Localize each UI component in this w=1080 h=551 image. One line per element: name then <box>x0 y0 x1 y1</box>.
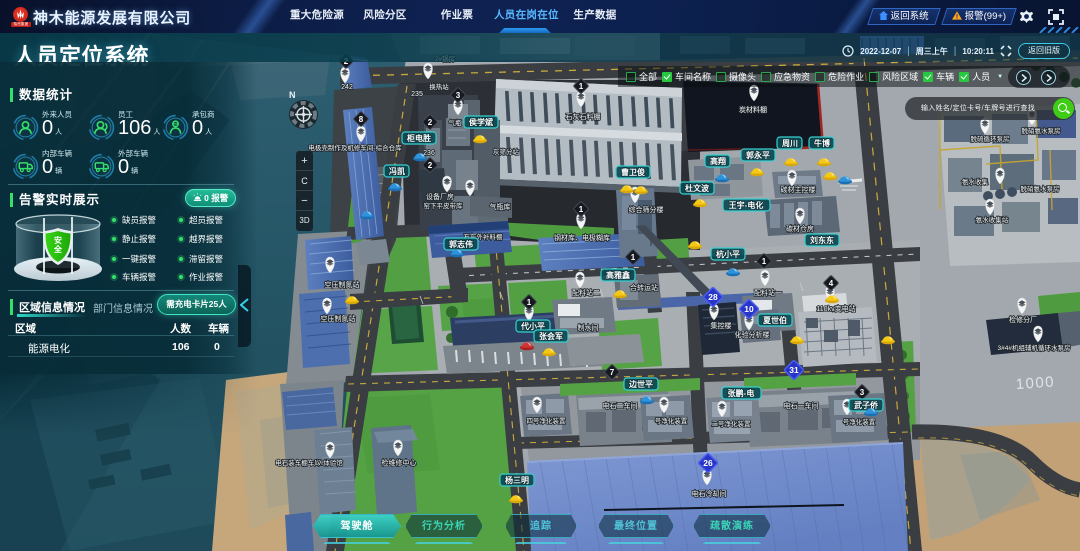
svg-text:空压制氮站: 空压制氮站 <box>321 314 356 323</box>
svg-text:二号净化装置: 二号净化装置 <box>712 419 752 428</box>
svg-text:1: 1 <box>579 82 584 91</box>
svg-text:郭永平: 郭永平 <box>746 150 770 160</box>
svg-text:郭志伟: 郭志伟 <box>449 239 473 249</box>
svg-text:夏世伯: 夏世伯 <box>762 315 787 325</box>
svg-text:四号净化装置: 四号净化装置 <box>527 416 567 425</box>
svg-text:空压制氮站: 空压制氮站 <box>325 280 360 289</box>
svg-text:电石冷却间: 电石冷却间 <box>692 489 727 498</box>
svg-text:化验分析楼: 化验分析楼 <box>735 330 770 339</box>
svg-text:3#4#机组辅机循环水泵房: 3#4#机组辅机循环水泵房 <box>998 343 1071 352</box>
svg-text:氨水收集站: 氨水收集站 <box>976 215 1009 224</box>
svg-text:8: 8 <box>359 115 364 124</box>
svg-text:杜文波: 杜文波 <box>685 183 710 193</box>
svg-text:号净化装置: 号净化装置 <box>655 416 688 425</box>
svg-text:Vr体验馆: Vr体验馆 <box>317 458 343 467</box>
svg-text:1: 1 <box>762 257 767 266</box>
svg-text:合转运站: 合转运站 <box>630 283 658 292</box>
svg-text:236: 236 <box>423 150 435 157</box>
svg-text:242: 242 <box>341 84 353 91</box>
svg-text:4: 4 <box>829 279 834 288</box>
svg-text:灰筛分站: 灰筛分站 <box>493 147 520 156</box>
svg-text:3: 3 <box>456 91 461 100</box>
svg-text:电石二车间: 电石二车间 <box>603 401 638 410</box>
svg-text:26: 26 <box>703 458 713 468</box>
svg-text:氨水收集: 氨水收集 <box>962 177 989 186</box>
svg-text:配料站二: 配料站二 <box>572 288 600 297</box>
svg-text:刘东东: 刘东东 <box>810 235 834 245</box>
svg-text:3: 3 <box>860 388 865 397</box>
svg-text:碳材仓房: 碳材仓房 <box>786 224 814 233</box>
svg-text:高翔: 高翔 <box>710 156 726 166</box>
svg-text:柜电胜: 柜电胜 <box>406 133 431 143</box>
svg-text:炭材料棚: 炭材料棚 <box>739 105 767 114</box>
svg-text:10: 10 <box>744 304 754 314</box>
svg-text:气瓶库: 气瓶库 <box>490 202 511 211</box>
svg-text:配料站一: 配料站一 <box>754 288 782 297</box>
svg-text:1: 1 <box>579 205 584 214</box>
svg-text:边世平: 边世平 <box>628 379 653 389</box>
svg-text:检维修中心: 检维修中心 <box>382 458 417 467</box>
svg-text:综合筛分楼: 综合筛分楼 <box>629 205 664 214</box>
svg-text:2: 2 <box>428 118 433 127</box>
svg-text:周川: 周川 <box>782 139 798 148</box>
svg-text:高雅鑫: 高雅鑫 <box>606 270 630 280</box>
svg-text:电极壳制作及机修车间-综合仓库: 电极壳制作及机修车间-综合仓库 <box>308 143 402 152</box>
svg-text:杭小平: 杭小平 <box>716 249 740 259</box>
svg-text:31: 31 <box>789 365 799 375</box>
svg-text:1: 1 <box>527 298 532 307</box>
svg-text:1000: 1000 <box>1015 373 1055 393</box>
svg-text:石灰石料棚: 石灰石料棚 <box>566 112 601 121</box>
svg-text:冯凯: 冯凯 <box>389 166 405 176</box>
svg-text:钢材库、电极糊库: 钢材库、电极糊库 <box>554 233 610 242</box>
svg-text:全: 全 <box>53 244 63 254</box>
svg-text:110kv变电站: 110kv变电站 <box>816 304 855 313</box>
svg-text:牛博: 牛博 <box>814 138 830 148</box>
svg-text:1: 1 <box>631 253 636 262</box>
svg-text:脱硝氨水泵房: 脱硝氨水泵房 <box>1021 184 1060 193</box>
svg-text:武子侨: 武子侨 <box>854 400 879 410</box>
svg-text:换热站: 换热站 <box>429 82 449 91</box>
svg-text:检修分厂: 检修分厂 <box>1009 315 1037 324</box>
svg-text:号净化装置: 号净化装置 <box>843 417 876 426</box>
svg-text:电石装车棚车库: 电石装车棚车库 <box>275 458 321 467</box>
svg-text:窑下平皮带库: 窑下平皮带库 <box>424 201 464 210</box>
svg-text:安: 安 <box>54 235 62 245</box>
svg-text:7: 7 <box>610 368 615 377</box>
svg-text:电石一车间: 电石一车间 <box>784 401 819 410</box>
svg-text:曹卫俊: 曹卫俊 <box>621 167 645 177</box>
svg-text:制水间: 制水间 <box>578 323 599 332</box>
svg-text:脱硝氨水泵房: 脱硝氨水泵房 <box>1022 126 1061 135</box>
svg-text:碳材主控楼: 碳材主控楼 <box>781 185 816 194</box>
svg-text:2: 2 <box>428 161 433 170</box>
svg-text:张鹏-电: 张鹏-电 <box>728 388 755 398</box>
svg-text:235: 235 <box>411 91 423 98</box>
svg-text:杨三明: 杨三明 <box>505 475 529 485</box>
svg-text:集控楼: 集控楼 <box>711 321 732 330</box>
svg-text:张会军: 张会军 <box>539 331 563 341</box>
svg-text:设备厂房: 设备厂房 <box>426 192 454 201</box>
svg-text:王宇-电化: 王宇-电化 <box>729 200 764 210</box>
svg-text:侯学斌: 侯学斌 <box>469 117 493 127</box>
svg-text:28: 28 <box>708 292 718 302</box>
svg-text:气瓶: 气瓶 <box>449 118 463 127</box>
svg-text:脱硫循环泵房: 脱硫循环泵房 <box>971 134 1010 143</box>
